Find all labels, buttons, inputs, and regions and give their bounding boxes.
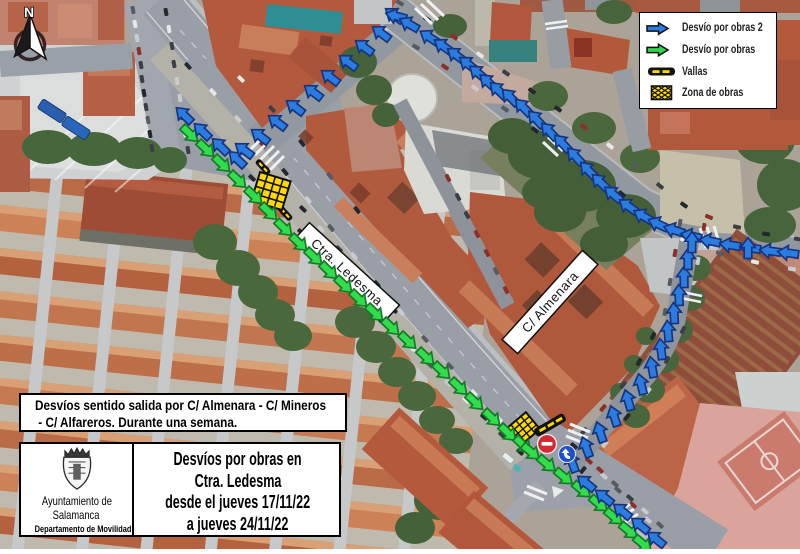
svg-text:N: N [24, 4, 34, 20]
